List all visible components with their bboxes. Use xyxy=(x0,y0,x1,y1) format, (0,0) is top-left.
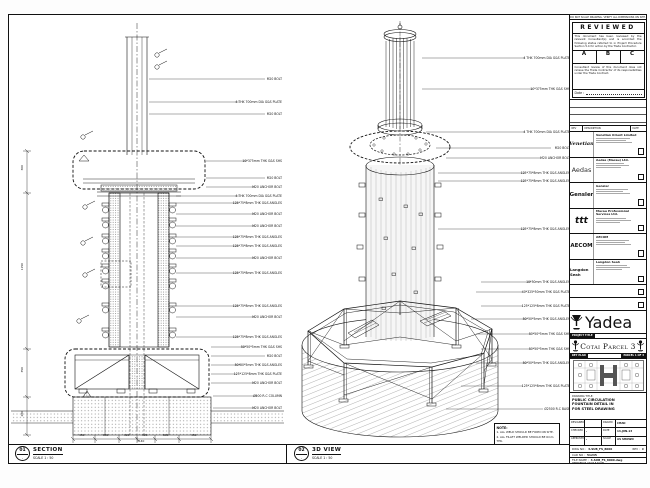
key-plan-ref: PARCEL 1 OF 3 xyxy=(621,354,646,358)
callout-label: Ø2500 R.C BASE xyxy=(544,408,570,411)
drawn-label: DRAWN xyxy=(602,420,616,428)
gensler-logo: Gensler xyxy=(570,183,594,208)
consultant-name: AECOM xyxy=(596,236,644,239)
cad-no-label: CAD NO : xyxy=(572,453,585,457)
revision-rows xyxy=(570,100,646,126)
logo-text: Venetian xyxy=(570,141,594,147)
dwg-no-label: DWG NO : xyxy=(572,447,586,451)
callout-label: M20 ANCHOR BOLT xyxy=(252,257,282,260)
consultant-name: Venetian Orient Limited xyxy=(596,134,644,137)
dimension-value: 800 xyxy=(163,434,169,437)
address-line xyxy=(596,165,629,166)
callout-label: M20 ANCHOR BOLT xyxy=(252,213,282,216)
callout-label: 4 THK 700mm DIA G&S PLATE xyxy=(523,57,570,60)
address-line xyxy=(596,218,626,219)
address-line xyxy=(596,142,632,143)
drawing-sheet: M20 BOLT 4 THK 700mm DIA G&S PLATE M20 B… xyxy=(0,0,650,488)
consultant-row: Gensler Gensler xyxy=(570,183,646,209)
consultant-row: Langdon Seah Langdon Seah xyxy=(570,260,646,286)
address-line xyxy=(596,163,624,164)
detail-number: 02 xyxy=(295,448,308,453)
callout-label: M20 BOLT xyxy=(267,177,282,180)
dimension-value: 320 xyxy=(142,434,148,437)
view-scale: SCALE 1 : 50 xyxy=(33,456,63,460)
callout-label: M20 ANCHOR BOLT xyxy=(252,186,282,189)
status-grade-row: A B C xyxy=(573,50,644,64)
callout-label: M20 ANCHOR BOLT xyxy=(252,407,282,410)
note-line: 2. ALL FILLET WELDED SHOULD BE 6mm THK. xyxy=(497,435,558,443)
review-status-checkbox[interactable] xyxy=(638,174,645,181)
dimension-total: 3140 xyxy=(137,440,144,443)
aedas-logo: Aedas xyxy=(570,158,594,183)
revision-row-empty xyxy=(570,108,646,116)
lamppost-icon xyxy=(572,340,579,352)
section-view-panel: M20 BOLT 4 THK 700mm DIA G&S PLATE M20 B… xyxy=(9,15,286,463)
address-line xyxy=(596,138,630,139)
callout-label: 125*75*8mm THK G&S ANGLES xyxy=(233,336,282,339)
drawing-title-line: FOR STEEL DRAWING xyxy=(572,407,644,412)
callout-label: Ø500 R.C COLUMN xyxy=(253,395,282,398)
drawn-value: CHAD xyxy=(616,420,646,428)
callout-label: 125*75*8mm THK G&S ANGLES xyxy=(521,228,570,231)
address-line xyxy=(596,269,622,270)
aecom-logo: AECOM xyxy=(570,234,594,259)
callout-label: 125*125*8mm THK G&S PLATE xyxy=(522,305,570,308)
designed-label: DESIGNED xyxy=(570,420,585,428)
callout-label: 40*325*50mm THK G&S PLATE xyxy=(522,291,570,294)
contractor-logo xyxy=(570,314,583,331)
dimension-value: 320 xyxy=(124,434,130,437)
cad-no-value: 51245 xyxy=(587,453,597,457)
callout-label: M20 BOLT xyxy=(267,355,282,358)
key-plan-drawing xyxy=(573,360,644,391)
grade-b-cell: B xyxy=(597,51,621,63)
rev-value: C xyxy=(642,447,644,451)
consultant-row-empty xyxy=(570,298,646,311)
approved-label: APPROVED xyxy=(570,437,585,445)
dimension-value: 450 xyxy=(79,434,85,437)
callout-label: 50*50*5mm THK G&S SHS xyxy=(241,346,282,349)
date-fill-line xyxy=(586,91,641,95)
consultant-name: Gensler xyxy=(596,185,644,188)
scale-value: AS SHOWN xyxy=(616,437,646,445)
detail-bubble: 02 - xyxy=(294,446,309,461)
approval-fields: DESIGNED DRAWN CHAD CHECKED - DATE 14-JU… xyxy=(570,420,646,446)
dimension-value: 800 xyxy=(103,434,109,437)
consultant-name: Macau Professional Services Ltd. xyxy=(596,210,644,217)
address-line xyxy=(596,167,621,168)
review-status-checkbox[interactable] xyxy=(638,276,645,283)
checked-label: CHECKED xyxy=(570,428,585,436)
consultant-row: Aedas Aedas (Macau) Ltd. xyxy=(570,158,646,184)
callout-label: M20 ANCHOR BOLT xyxy=(252,316,282,319)
panel-divider xyxy=(286,444,287,463)
callout-label: M20 ANCHOR BOLT xyxy=(252,382,282,385)
section-drawing xyxy=(9,15,286,444)
callout-label: 125*75*8mm THK G&S ANGLES xyxy=(521,180,570,183)
consultant-name: Aedas (Macau) Ltd. xyxy=(596,159,644,162)
callout-label: 4 THK 700mm DIA G&S PLATE xyxy=(523,131,570,134)
address-line xyxy=(596,240,629,241)
view-scale: SCALE 1 : 50 xyxy=(312,456,341,460)
consultant-row: AECOM AECOM xyxy=(570,234,646,260)
project-title: Cotai Parcel 3 xyxy=(580,342,635,351)
detail-bubble: 01 - xyxy=(15,446,30,461)
detail-number: 01 xyxy=(16,448,29,453)
view-title: SECTION xyxy=(33,447,63,455)
rev-col-header: REV xyxy=(570,126,583,131)
stamp-date-line: Date : xyxy=(573,89,644,97)
title-block: DO NOT SCALE DRAWING. VERIFY ALL DIMENSI… xyxy=(569,15,646,463)
logo-text: ttt xyxy=(575,216,588,226)
key-plan-thumbnail xyxy=(570,359,646,393)
callout-label: 50*50*5mm THK G&S ANGLES xyxy=(235,364,282,367)
address-line xyxy=(596,267,630,268)
logo-text: Aedas xyxy=(572,166,592,174)
review-status-checkbox[interactable] xyxy=(638,250,645,257)
callout-label: 4 THK 700mm DIA G&S PLATE xyxy=(235,101,282,104)
address-line xyxy=(596,191,623,192)
reviewed-stamp: REVIEWED This document has been reviewed… xyxy=(570,20,646,100)
callout-label: 125*75*8mm THK G&S ANGLES xyxy=(233,236,282,239)
review-status-checkbox[interactable] xyxy=(638,225,645,232)
venetian-logo: Venetian xyxy=(570,132,594,157)
section-view-label: 01 - SECTION SCALE 1 : 50 xyxy=(15,446,63,461)
description-col-header: DESCRIPTION xyxy=(583,126,631,131)
langdon-seah-logo: Langdon Seah xyxy=(570,260,594,285)
date-label: DATE xyxy=(602,428,616,436)
file-name-label: FILE NAME : xyxy=(572,458,589,462)
callout-label: M20 ANCHOR BOLT xyxy=(252,225,282,228)
contractor-block: Yadea Construction (Macau) CO., LTD. xyxy=(570,311,646,334)
grade-a-cell: A xyxy=(573,51,597,63)
consultant-row-empty xyxy=(570,285,646,298)
ttt-logo: ttt xyxy=(570,209,594,234)
consultant-name: Langdon Seah xyxy=(596,261,644,264)
dwg-no-value: 3-SUB_FS_8000 xyxy=(588,447,612,451)
callout-label: 125*125*8mm THK G&S PLATE xyxy=(522,385,570,388)
detail-sheet: - xyxy=(16,456,29,460)
notes-heading: NOTE: xyxy=(497,426,558,430)
view-title: 3D VIEW xyxy=(312,447,341,455)
address-line xyxy=(596,244,631,245)
sheet-frame: M20 BOLT 4 THK 700mm DIA G&S PLATE M20 B… xyxy=(8,14,647,464)
review-status-checkbox[interactable] xyxy=(638,199,645,206)
dimension-value: 300 xyxy=(21,165,24,171)
dimension-value: 350 xyxy=(21,367,24,373)
file-name-row: FILE NAME : 3-SUB_FS_8000.dwg REFERENCE … xyxy=(570,458,646,465)
key-plan-label: KEY PLAN xyxy=(570,354,588,358)
reference-note: REFERENCE ON FILE NAME xyxy=(572,462,604,465)
callout-label: 125*125*8mm THK G&S PLATE xyxy=(234,373,282,376)
note-line: 1. ALL WELD SHOULD BE FORM ON SITE. xyxy=(497,430,558,434)
lamppost-icon xyxy=(637,340,644,352)
checked-value: - xyxy=(585,428,602,436)
callout-label: 50*50*5mm THK G&S SHS xyxy=(529,333,570,336)
callout-label: 10*375mm THK G&S SHS xyxy=(242,160,282,163)
date-col-header: DATE xyxy=(631,126,646,131)
drawing-title-block: DRAWING TITLE: PUBLIC CIRCULATION FOUNTA… xyxy=(570,393,646,420)
scale-label: SCALE xyxy=(602,437,616,445)
detail-sheet: - xyxy=(295,456,308,460)
rev-label: REV : xyxy=(632,447,639,451)
project-title-banner: Cotai Parcel 3 xyxy=(570,339,646,354)
address-line xyxy=(596,265,627,266)
notes-block: NOTE: 1. ALL WELD SHOULD BE FORM ON SITE… xyxy=(494,423,560,445)
revision-row-empty xyxy=(570,115,646,123)
stamp-paragraph: This document has been reviewed by the r… xyxy=(573,34,644,51)
callout-label: 10*375mm THK G&S SHS xyxy=(530,88,570,91)
callout-label: 125*75*8mm THK G&S ANGLES xyxy=(233,245,282,248)
designed-value xyxy=(585,420,602,428)
date-label: Date : xyxy=(575,91,585,95)
callout-label: 50*50*5mm THK G&S ANGLES xyxy=(523,362,570,365)
callout-label: 125*75*8mm THK G&S ANGLES xyxy=(233,202,282,205)
date-value: 14-JUN-13 xyxy=(616,428,646,436)
review-status-checkbox[interactable] xyxy=(638,302,645,309)
iso-view-label: 02 - 3D VIEW SCALE 1 : 50 xyxy=(294,446,341,461)
iso-view-panel: 4 THK 700mm DIA G&S PLATE 10*375mm THK G… xyxy=(286,15,572,463)
callout-label: 125*75*8mm THK G&S ANGLES xyxy=(233,305,282,308)
callout-label: 4 THK 700mm DIA G&S PLATE xyxy=(235,195,282,198)
callout-label: 10*50mm THK G&S ANGLES xyxy=(526,281,570,284)
callout-label: 50*50*5mm THK G&S ANGLES xyxy=(523,318,570,321)
address-line xyxy=(596,242,625,243)
logo-text: Gensler xyxy=(570,192,593,198)
dwg-no-row: DWG NO : 3-SUB_FS_8000 REV : C xyxy=(570,446,646,453)
address-line xyxy=(596,222,620,223)
callout-label: M20 BOLT xyxy=(555,147,570,150)
stamp-title: REVIEWED xyxy=(573,23,644,34)
project-title-label: PROJECT TITLE xyxy=(570,334,595,338)
dimension-value: 280 xyxy=(21,411,24,417)
callout-label: M20 BOLT xyxy=(267,78,282,81)
address-line xyxy=(596,193,630,194)
callout-label: M20 BOLT xyxy=(267,113,282,116)
address-line xyxy=(596,140,626,141)
revision-row-empty xyxy=(570,100,646,108)
callout-label: 125*75*8mm THK G&S ANGLES xyxy=(233,272,282,275)
approved-value: - xyxy=(585,437,602,445)
review-status-checkbox[interactable] xyxy=(638,289,645,296)
address-line xyxy=(596,189,628,190)
consultant-row: Venetian Venetian Orient Limited xyxy=(570,132,646,158)
file-name-value: 3-SUB_FS_8000.dwg xyxy=(591,458,623,462)
callout-label: 50*50*5mm THK G&S SHS xyxy=(529,348,570,351)
callout-label: 125*75*8mm THK G&S ANGLES xyxy=(521,172,570,175)
dimension-value: 450 xyxy=(191,434,197,437)
grade-c-cell: C xyxy=(621,51,644,63)
stamp-paragraph: Consultant review of this document does … xyxy=(573,64,644,77)
logo-text: AECOM xyxy=(570,243,592,249)
logo-text: Langdon Seah xyxy=(570,267,593,277)
dimension-value: 1150 xyxy=(21,263,24,270)
review-status-checkbox[interactable] xyxy=(638,148,645,155)
label-strip-divider xyxy=(9,444,572,445)
consultant-row: ttt Macau Professional Services Ltd. xyxy=(570,209,646,235)
contractor-name: Yadea Construction (Macau) CO., LTD. xyxy=(585,313,646,335)
address-line xyxy=(596,220,631,221)
callout-label: M20 ANCHOR BOLT xyxy=(540,157,570,160)
